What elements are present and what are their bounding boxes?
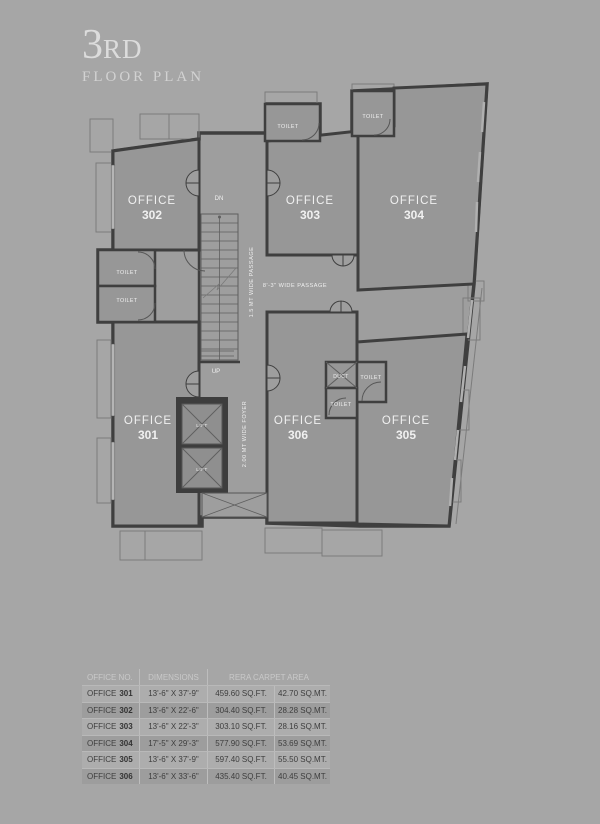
toilet-left-1 <box>98 250 155 286</box>
sqft-cell: 597.40 SQ.FT. <box>208 752 275 768</box>
svg-text:305: 305 <box>396 428 416 442</box>
lift-1-label: LIFT <box>196 423 207 429</box>
lift-block <box>176 397 228 493</box>
sqft-cell: 577.90 SQ.FT. <box>208 736 275 752</box>
ledge <box>90 119 113 152</box>
ledge <box>97 438 111 503</box>
dimensions-cell: 17'-5" X 29'-3" <box>140 736 208 752</box>
office-no-cell: OFFICE302 <box>82 703 140 719</box>
foyer-label: 2.00 MT WIDE FOYER <box>242 401 248 467</box>
table-row: OFFICE303 13'-6" X 22'-3" 303.10 SQ.FT. … <box>82 718 330 735</box>
ledge <box>265 528 322 553</box>
office-no-cell: OFFICE301 <box>82 686 140 702</box>
dimensions-cell: 13'-6" X 37'-9" <box>140 752 208 768</box>
table-row: OFFICE306 13'-6" X 33'-6" 435.40 SQ.FT. … <box>82 768 330 785</box>
sqmt-cell: 40.45 SQ.MT. <box>275 769 330 785</box>
svg-text:303: 303 <box>300 208 320 222</box>
dimensions-cell: 13'-6" X 33'-6" <box>140 769 208 785</box>
svg-text:OFFICE: OFFICE <box>274 415 322 427</box>
svg-text:301: 301 <box>138 428 158 442</box>
office-no-cell: OFFICE306 <box>82 769 140 785</box>
table-row: OFFICE301 13'-6" X 37'-9" 459.60 SQ.FT. … <box>82 685 330 702</box>
sqmt-cell: 53.69 SQ.MT. <box>275 736 330 752</box>
floor-plan: OFFICE 302 OFFICE 303 OFFICE 304 OFFICE … <box>0 0 600 660</box>
header-office-no: OFFICE NO. <box>82 669 140 685</box>
ledge <box>322 530 382 556</box>
lift-2-label: LIFT <box>196 467 207 473</box>
passage-horizontal-label: 8'-3" WIDE PASSAGE <box>263 283 327 289</box>
duct-label: DUCT <box>333 374 349 380</box>
table-row: OFFICE302 13'-6" X 22'-6" 304.40 SQ.FT. … <box>82 702 330 719</box>
office-303-room <box>267 131 358 255</box>
area-table: OFFICE NO. DIMENSIONS RERA CARPET AREA O… <box>82 669 330 784</box>
toilet-left-1-label: TOILET <box>116 270 137 276</box>
toilet-306-lower-label: TOILET <box>330 402 351 408</box>
sqmt-cell: 42.70 SQ.MT. <box>275 686 330 702</box>
dimensions-cell: 13'-6" X 22'-3" <box>140 719 208 735</box>
stairs-dn-label: DN <box>215 196 224 202</box>
header-rera-carpet-area: RERA CARPET AREA <box>208 669 330 685</box>
sqft-cell: 459.60 SQ.FT. <box>208 686 275 702</box>
sqmt-cell: 28.28 SQ.MT. <box>275 703 330 719</box>
header-dimensions: DIMENSIONS <box>140 669 208 685</box>
passage-vertical-label: 1.5 MT WIDE PASSAGE <box>249 247 255 318</box>
sqft-cell: 304.40 SQ.FT. <box>208 703 275 719</box>
svg-text:302: 302 <box>142 208 162 222</box>
toilet-left-2-label: TOILET <box>116 298 137 304</box>
sqmt-cell: 28.16 SQ.MT. <box>275 719 330 735</box>
svg-text:OFFICE: OFFICE <box>286 195 334 207</box>
svg-text:OFFICE: OFFICE <box>390 195 438 207</box>
toilet-306-right <box>357 362 386 402</box>
dimensions-cell: 13'-6" X 37'-9" <box>140 686 208 702</box>
office-no-cell: OFFICE304 <box>82 736 140 752</box>
table-row: OFFICE305 13'-6" X 37'-9" 597.40 SQ.FT. … <box>82 751 330 768</box>
office-no-cell: OFFICE305 <box>82 752 140 768</box>
sqft-cell: 435.40 SQ.FT. <box>208 769 275 785</box>
toilet-306-right-label: TOILET <box>360 375 381 381</box>
sqft-cell: 303.10 SQ.FT. <box>208 719 275 735</box>
table-row: OFFICE304 17'-5" X 29'-3" 577.90 SQ.FT. … <box>82 735 330 752</box>
table-header-row: OFFICE NO. DIMENSIONS RERA CARPET AREA <box>82 669 330 685</box>
ledge <box>265 92 317 104</box>
toilet-left-2 <box>98 286 155 322</box>
dimensions-cell: 13'-6" X 22'-6" <box>140 703 208 719</box>
stairs-up-label: UP <box>212 369 220 375</box>
sqmt-cell: 55.50 SQ.MT. <box>275 752 330 768</box>
entry-duct <box>202 493 267 517</box>
toilet-303-label: TOILET <box>277 124 298 130</box>
svg-text:306: 306 <box>288 428 308 442</box>
ledge <box>97 340 111 418</box>
svg-text:304: 304 <box>404 208 424 222</box>
svg-text:OFFICE: OFFICE <box>128 195 176 207</box>
ledge <box>96 163 112 232</box>
ledge <box>120 531 202 560</box>
toilet-304-label: TOILET <box>362 114 383 120</box>
staircase <box>201 214 238 360</box>
office-no-cell: OFFICE303 <box>82 719 140 735</box>
svg-text:OFFICE: OFFICE <box>124 415 172 427</box>
svg-text:OFFICE: OFFICE <box>382 415 430 427</box>
toilet-303 <box>265 104 320 141</box>
